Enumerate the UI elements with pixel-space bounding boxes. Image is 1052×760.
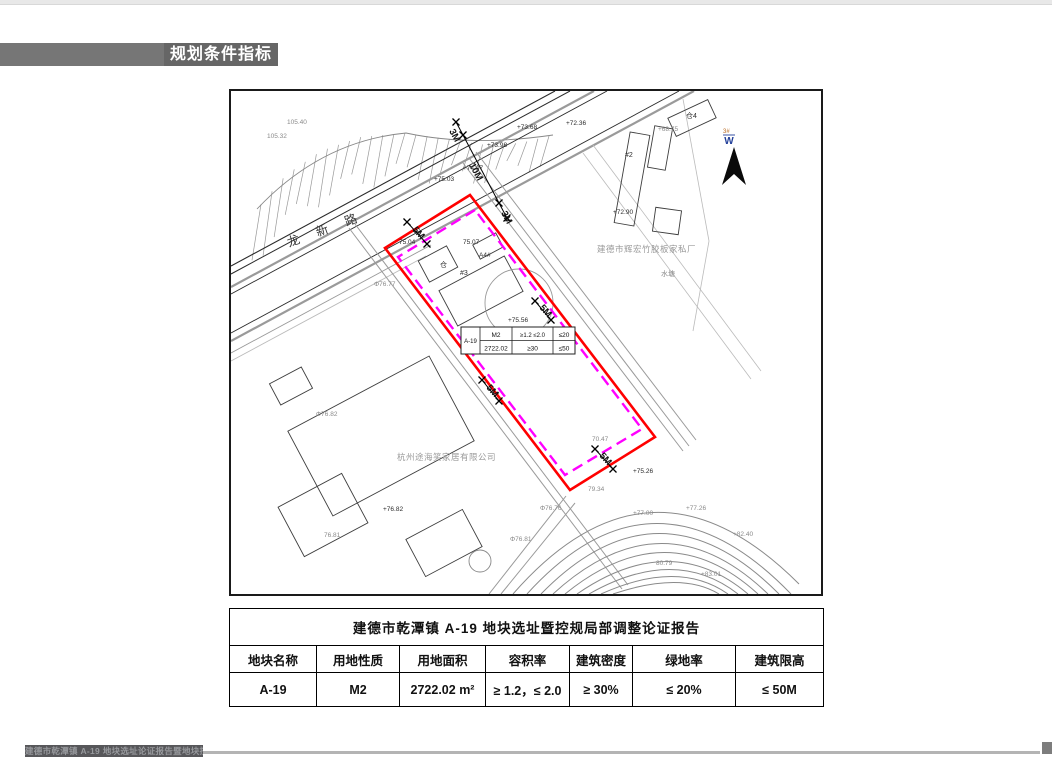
hatch-line [274,178,283,237]
hatch-line [407,135,416,168]
map-label: #3 [460,270,468,277]
table-data-row: A-19 M2 2722.02 m² ≥ 1.2，≤ 2.0 ≥ 30% ≤ 2… [230,673,824,707]
map-label: A4# [479,252,491,259]
inline-height-limit: ≤50 [559,346,570,353]
map-label: Φ76.82 [316,411,338,418]
header-plot-name: 地块名称 [230,646,317,673]
map-label: 76.81 [324,532,341,539]
hatch-line [385,134,394,176]
footer-rule [203,751,1040,754]
road-name-label: 龙新路 [285,204,376,249]
header-land-area: 用地面积 [400,646,486,673]
inline-green-rate: ≤20 [559,332,570,339]
north-arrow-label: W [724,136,734,147]
map-label: +77.00 [633,510,653,517]
page-top-strip [0,0,1052,5]
hatch-line [507,143,516,161]
inline-land-use: M2 [491,332,500,339]
map-label: 仓4 [686,111,697,120]
inline-far: ≥1.2 ≤2.0 [520,333,546,339]
value-height-limit: ≤ 50M [736,673,824,707]
hatch-line [363,136,372,184]
map-label: #2 [625,152,633,159]
map-label: +75.03 [434,176,454,183]
north-arrow-sublabel: 3# [723,129,730,135]
map-label: Φ76.77 [374,281,396,288]
map-inline-table: A-19 M2 ≥1.2 ≤2.0 ≤20 2722.02 ≥30 ≤50 [461,327,575,354]
north-arrow-icon [722,147,746,185]
inline-area: 2722.02 [484,346,508,353]
hatch-line [296,162,305,204]
value-green-rate: ≤ 20% [633,673,736,707]
map-label: 80.79 [656,560,673,567]
company-label-right: 建德市辉宏竹胶板家私厂 [597,244,696,254]
hatch-line [518,142,527,166]
map-label: 70.47 [592,436,609,443]
map-label: +72.90 [613,209,633,216]
dimension-label: 5M [537,303,554,320]
site-plan-svg: 3M10M3M5M5M5M5M 龙新路 杭州途海笑家居有限公司 建德市辉宏竹胶板… [231,91,821,594]
value-far: ≥ 1.2，≤ 2.0 [486,673,570,707]
header-building-density: 建筑密度 [570,646,633,673]
map-label: 75.04 [399,239,416,246]
map-label: +73.98 [487,142,507,149]
value-plot-name: A-19 [230,673,317,707]
hatch-line [374,135,383,187]
map-label: Φ76.76 [540,505,562,512]
section-title-bar: 规划条件指标 [0,43,278,66]
map-label: +77.26 [686,505,706,512]
contour-lines [513,512,799,594]
map-label: +68.75 [658,126,678,133]
value-building-density: ≥ 30% [570,673,633,707]
map-label: +82.40 [733,531,753,538]
inline-density: ≥30 [527,346,538,353]
site-plan-map: 3M10M3M5M5M5M5M 龙新路 杭州途海笑家居有限公司 建德市辉宏竹胶板… [229,89,823,596]
map-label: +75.26 [633,468,653,475]
map-label: +74.07 [463,165,483,172]
map-label: +72.36 [566,120,586,127]
map-label: Φ76.81 [510,536,532,543]
map-label: +83.01 [701,571,721,578]
value-land-use: M2 [317,673,400,707]
pond-circles [469,269,553,572]
map-label: +73.68 [517,124,537,131]
company-label-left: 杭州途海笑家居有限公司 [397,452,496,462]
road-lines [231,91,694,361]
header-far: 容积率 [486,646,570,673]
table-title-row: 建德市乾潭镇 A-19 地块选址暨控规局部调整论证报告 [230,609,824,646]
header-green-rate: 绿地率 [633,646,736,673]
map-label: +76.82 [383,506,403,513]
value-land-area: 2722.02 m² [400,673,486,707]
header-height-limit: 建筑限高 [736,646,824,673]
north-arrow: 3# W [722,129,746,185]
inline-plot-name: A-19 [464,339,477,345]
map-label: 75.07 [463,239,480,246]
header-land-use: 用地性质 [317,646,400,673]
map-label: +75.56 [508,317,528,324]
hatch-line [285,169,294,214]
footer-corner-square [1042,742,1052,754]
hatch-line [396,133,405,164]
hatch-line [418,136,427,180]
section-title: 规划条件指标 [170,43,272,66]
map-label: 105.32 [267,133,287,140]
map-label: 仓 [440,260,447,269]
table-header-row: 地块名称 用地性质 用地面积 容积率 建筑密度 绿地率 建筑限高 [230,646,824,673]
map-label: 105.40 [287,119,307,126]
table-title: 建德市乾潭镇 A-19 地块选址暨控规局部调整论证报告 [230,609,824,646]
map-label: 水塘 [661,269,675,278]
footer-caption: 建德市乾潭镇 A-19 地块选址论证报告暨地块控规 [25,745,203,757]
map-label: 79.34 [588,486,605,493]
planning-indicators-table: 建德市乾潭镇 A-19 地块选址暨控规局部调整论证报告 地块名称 用地性质 用地… [229,608,824,707]
